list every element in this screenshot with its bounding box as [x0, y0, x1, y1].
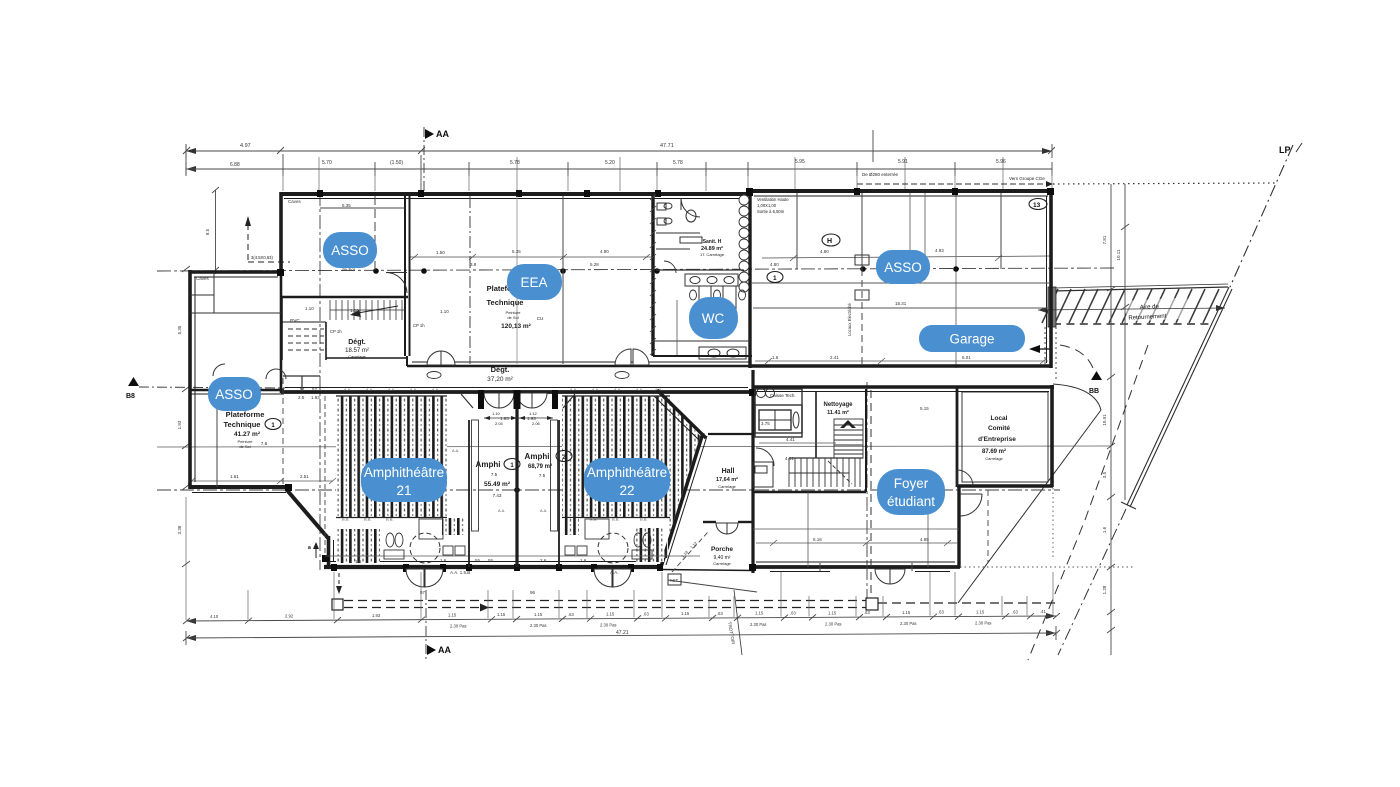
svg-text:A.A.: A.A. — [410, 388, 417, 392]
svg-text:Amphithéâtre: Amphithéâtre — [587, 465, 667, 480]
svg-text:ASSO: ASSO — [884, 260, 922, 275]
svg-text:1.15: 1.15 — [976, 610, 985, 615]
svg-text:a: a — [308, 545, 311, 551]
svg-text:Foyer: Foyer — [894, 476, 929, 491]
svg-text:8.5: 8.5 — [205, 228, 210, 235]
svg-text:4.41: 4.41 — [786, 437, 795, 442]
svg-text:1.6: 1.6 — [1102, 526, 1107, 533]
svg-text:.63: .63 — [938, 610, 944, 615]
svg-text:CU: CU — [537, 316, 544, 321]
svg-text:7.43: 7.43 — [493, 493, 502, 498]
svg-text:5.78: 5.78 — [673, 160, 683, 166]
svg-text:1.15: 1.15 — [534, 612, 543, 617]
svg-text:2.30 Pas: 2.30 Pas — [975, 621, 992, 626]
svg-text:10.91: 10.91 — [1102, 414, 1107, 426]
svg-text:ASSO: ASSO — [331, 243, 369, 258]
svg-text:2.30 Pas: 2.30 Pas — [900, 621, 917, 626]
svg-text:A.A.: A.A. — [432, 388, 439, 392]
svg-text:55.49 m²: 55.49 m² — [484, 481, 511, 488]
svg-text:.63: .63 — [568, 612, 574, 617]
svg-text:1.50: 1.50 — [436, 250, 445, 255]
svg-text:Sortie à 6,50m: Sortie à 6,50m — [757, 209, 785, 214]
svg-text:4.97: 4.97 — [240, 143, 251, 149]
svg-text:WC: WC — [702, 311, 725, 326]
svg-text:2.30 Pas: 2.30 Pas — [530, 623, 547, 628]
svg-text:2.51: 2.51 — [300, 474, 309, 479]
svg-text:Porche: Porche — [711, 546, 733, 553]
svg-text:A.A.: A.A. — [610, 570, 619, 575]
svg-text:55: 55 — [475, 558, 481, 563]
svg-text:5.78: 5.78 — [510, 160, 520, 166]
svg-text:1.28: 1.28 — [1102, 585, 1107, 594]
svg-text:1T. Carrelage: 1T. Carrelage — [700, 252, 725, 257]
svg-text:5.91: 5.91 — [898, 159, 908, 165]
svg-text:5.35: 5.35 — [177, 325, 182, 334]
svg-text:17,64 m²: 17,64 m² — [716, 476, 738, 483]
svg-text:1.15: 1.15 — [681, 611, 690, 616]
svg-text:4.90: 4.90 — [600, 249, 609, 254]
svg-text:CP 1h: CP 1h — [413, 323, 425, 328]
svg-text:4.10: 4.10 — [210, 614, 219, 619]
svg-text:1.93: 1.93 — [311, 395, 320, 400]
svg-text:Carrelage: Carrelage — [713, 561, 731, 566]
svg-text:2.41: 2.41 — [830, 355, 839, 360]
svg-text:.63: .63 — [1012, 609, 1018, 614]
svg-text:1.10: 1.10 — [305, 306, 314, 311]
svg-text:22: 22 — [619, 483, 634, 498]
svg-text:Carrelage: Carrelage — [348, 354, 366, 359]
svg-text:R.R.: R.R. — [640, 518, 648, 522]
svg-text:Plateforme: Plateforme — [226, 410, 265, 419]
svg-text:11.41 m²: 11.41 m² — [827, 409, 849, 416]
svg-text:5.15: 5.15 — [920, 406, 929, 411]
svg-text:A.A.: A.A. — [570, 388, 577, 392]
svg-text:1.6: 1.6 — [580, 558, 587, 563]
svg-text:2.30 Pas: 2.30 Pas — [600, 623, 617, 628]
svg-text:PVC: PVC — [290, 318, 300, 324]
svg-text:5.96: 5.96 — [996, 159, 1006, 165]
svg-text:87.69 m²: 87.69 m² — [982, 448, 1006, 455]
svg-text:1.15: 1.15 — [448, 613, 457, 618]
svg-text:de Sol: de Sol — [507, 315, 518, 320]
svg-text:Locaux Electricité: Locaux Electricité — [847, 303, 852, 336]
svg-text:1.93: 1.93 — [500, 416, 509, 421]
svg-text:1.15: 1.15 — [828, 610, 837, 615]
svg-text:Nettoyage: Nettoyage — [823, 402, 853, 408]
svg-text:5.95: 5.95 — [795, 159, 805, 165]
svg-text:2.92: 2.92 — [285, 613, 294, 618]
svg-text:Vers Groupe CGe: Vers Groupe CGe — [1009, 176, 1045, 181]
svg-text:1: 1 — [773, 275, 777, 282]
svg-text:H: H — [827, 238, 832, 245]
svg-text:R.R.: R.R. — [590, 518, 598, 522]
svg-text:Ventilation Haute: Ventilation Haute — [757, 197, 789, 202]
svg-text:1.15: 1.15 — [497, 612, 506, 617]
svg-text:7.81: 7.81 — [1102, 235, 1107, 244]
svg-text:10.11: 10.11 — [1116, 249, 1121, 260]
svg-text:B8: B8 — [126, 393, 135, 400]
svg-text:5.35: 5.35 — [342, 203, 351, 208]
svg-text:1.15: 1.15 — [606, 612, 615, 617]
svg-text:97: 97 — [420, 590, 426, 595]
svg-text:1.10: 1.10 — [440, 309, 449, 314]
svg-text:Technique: Technique — [224, 420, 261, 429]
svg-text:1.93: 1.93 — [177, 420, 182, 429]
svg-text:41.27 m²: 41.27 m² — [234, 431, 261, 438]
svg-text:68,79 m²: 68,79 m² — [528, 463, 552, 470]
svg-text:7.5: 7.5 — [539, 473, 546, 478]
svg-text:6.01: 6.01 — [962, 355, 971, 360]
svg-text:BB: BB — [1089, 388, 1099, 395]
svg-text:étudiant: étudiant — [887, 494, 935, 509]
svg-text:.63: .63 — [790, 611, 796, 616]
svg-text:37,20 m²: 37,20 m² — [487, 376, 513, 383]
svg-text:Aire de: Aire de — [1140, 304, 1160, 311]
svg-text:.63: .63 — [643, 611, 649, 616]
svg-text:96: 96 — [530, 590, 536, 595]
svg-text:1.6: 1.6 — [772, 355, 779, 360]
svg-text:3.8: 3.8 — [470, 262, 477, 267]
svg-text:51: 51 — [300, 387, 306, 392]
svg-text:A.A.: A.A. — [344, 388, 351, 392]
svg-text:Caisse Tech.: Caisse Tech. — [770, 393, 796, 398]
svg-text:1.93: 1.93 — [372, 613, 381, 618]
svg-text:1.10: 1.10 — [350, 308, 359, 313]
svg-text:A.A.: A.A. — [540, 509, 547, 513]
svg-text:A.A.: A.A. — [452, 449, 459, 453]
svg-text:1.15: 1.15 — [902, 610, 911, 615]
svg-text:55: 55 — [488, 558, 494, 563]
svg-text:1.93: 1.93 — [527, 416, 536, 421]
svg-text:21: 21 — [396, 483, 411, 498]
svg-text:7.6: 7.6 — [261, 441, 268, 446]
svg-text:de Sol: de Sol — [239, 444, 250, 449]
svg-text:4.80: 4.80 — [770, 262, 779, 267]
svg-text:.63: .63 — [864, 610, 870, 615]
svg-text:24.89 m²: 24.89 m² — [701, 245, 723, 252]
svg-text:Amphi: Amphi — [525, 452, 550, 461]
svg-text:3.38: 3.38 — [177, 525, 182, 534]
svg-text:Sanit. H: Sanit. H — [703, 239, 722, 245]
svg-text:1.6: 1.6 — [355, 559, 362, 564]
svg-text:.41: .41 — [1040, 609, 1046, 614]
svg-text:De Ø280 enterrée: De Ø280 enterrée — [862, 172, 899, 177]
svg-text:2.04: 2.04 — [495, 421, 504, 426]
svg-text:4.80: 4.80 — [820, 249, 829, 254]
svg-text:4.85: 4.85 — [920, 537, 929, 542]
svg-text:Hall: Hall — [722, 468, 735, 475]
svg-text:13: 13 — [1033, 202, 1041, 209]
svg-text:5.70: 5.70 — [322, 160, 332, 166]
svg-text:R.R.: R.R. — [364, 518, 372, 522]
svg-text:1,00X1,00: 1,00X1,00 — [757, 203, 777, 208]
svg-text:5.20: 5.20 — [605, 160, 615, 166]
svg-text:2.30 Pas: 2.30 Pas — [825, 621, 842, 626]
svg-text:Caves: Caves — [196, 276, 210, 281]
svg-text:R.R.: R.R. — [612, 518, 620, 522]
svg-text:A.A.: A.A. — [388, 388, 395, 392]
svg-text:Garage: Garage — [949, 332, 994, 347]
svg-text:2.5: 2.5 — [298, 395, 305, 400]
svg-text:15.31: 15.31 — [895, 301, 907, 306]
svg-text:4.41: 4.41 — [785, 456, 794, 461]
svg-text:2.30 Pas: 2.30 Pas — [750, 622, 767, 627]
svg-text:A.A.: A.A. — [498, 509, 505, 513]
svg-text:2.30 Pas: 2.30 Pas — [450, 624, 467, 629]
svg-text:47.71: 47.71 — [660, 143, 674, 149]
svg-text:R.R.: R.R. — [386, 518, 394, 522]
svg-text:Dégt.: Dégt. — [348, 339, 366, 346]
svg-text:ASSO: ASSO — [215, 387, 253, 402]
svg-text:A.A.: A.A. — [636, 388, 643, 392]
svg-text:4.93: 4.93 — [935, 248, 944, 253]
svg-text:47.21: 47.21 — [616, 630, 629, 636]
svg-text:3.75: 3.75 — [761, 421, 770, 426]
svg-text:d'Entreprise: d'Entreprise — [978, 436, 1016, 443]
svg-text:Caves: Caves — [288, 199, 302, 204]
svg-text:120,13 m²: 120,13 m² — [501, 323, 531, 330]
svg-text:6.16: 6.16 — [813, 537, 822, 542]
svg-text:Comité: Comité — [988, 425, 1010, 432]
svg-text:R.R.: R.R. — [342, 518, 350, 522]
svg-text:A.A.: A.A. — [614, 388, 621, 392]
svg-text:3(4.5X0,63): 3(4.5X0,63) — [251, 255, 273, 260]
svg-text:A.A.: A.A. — [592, 388, 599, 392]
svg-text:7.5: 7.5 — [491, 472, 498, 477]
svg-text:AA: AA — [438, 645, 451, 655]
svg-text:KST: KST — [670, 578, 679, 583]
svg-text:CP 1h: CP 1h — [330, 329, 342, 334]
svg-text:Carrelage: Carrelage — [985, 456, 1003, 461]
svg-text:(1.50): (1.50) — [390, 160, 403, 166]
svg-text:2.06: 2.06 — [532, 421, 541, 426]
svg-text:A.A.: A.A. — [366, 388, 373, 392]
svg-text:AA: AA — [436, 129, 449, 139]
svg-text:2.6: 2.6 — [540, 558, 547, 563]
svg-text:1.61: 1.61 — [230, 474, 239, 479]
svg-text:6.88: 6.88 — [230, 162, 240, 168]
svg-text:Carrelage: Carrelage — [718, 484, 736, 489]
svg-text:52: 52 — [312, 387, 318, 392]
svg-text:A.A. 1.5.B: A.A. 1.5.B — [450, 570, 470, 575]
svg-text:Technique: Technique — [487, 298, 524, 307]
svg-text:Amphithéâtre: Amphithéâtre — [364, 465, 444, 480]
svg-text:1.6: 1.6 — [440, 558, 447, 563]
svg-text:1.15: 1.15 — [755, 611, 764, 616]
svg-text:Local: Local — [991, 415, 1008, 422]
svg-text:.63: .63 — [717, 611, 723, 616]
svg-text:EEA: EEA — [520, 275, 547, 290]
svg-text:3.5: 3.5 — [1102, 471, 1107, 478]
svg-text:Amphi: Amphi — [476, 460, 501, 469]
svg-text:Dégt.: Dégt. — [491, 365, 510, 374]
svg-text:5.28: 5.28 — [590, 262, 599, 267]
